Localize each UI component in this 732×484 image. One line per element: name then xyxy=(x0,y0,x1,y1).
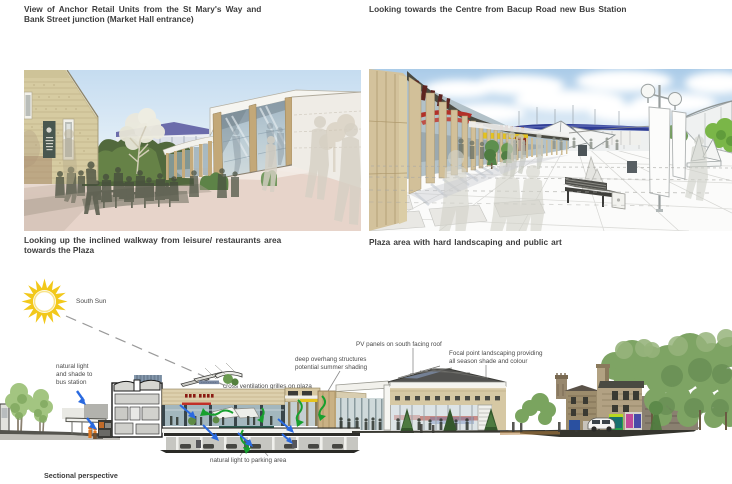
svg-text:bus station: bus station xyxy=(56,379,87,386)
svg-text:PV panels on south facing roof: PV panels on south facing roof xyxy=(356,341,442,348)
svg-text:and shade to: and shade to xyxy=(56,371,93,378)
svg-text:South Sun: South Sun xyxy=(76,298,107,305)
svg-text:potential summer shading: potential summer shading xyxy=(295,364,368,371)
svg-text:deep overhang structures: deep overhang structures xyxy=(295,356,366,363)
svg-text:Focal point landscaping provid: Focal point landscaping providing xyxy=(449,350,543,357)
svg-text:natural light to parking area: natural light to parking area xyxy=(210,457,287,464)
svg-text:natural light: natural light xyxy=(56,363,89,370)
svg-text:all season shade and colour: all season shade and colour xyxy=(449,358,527,365)
